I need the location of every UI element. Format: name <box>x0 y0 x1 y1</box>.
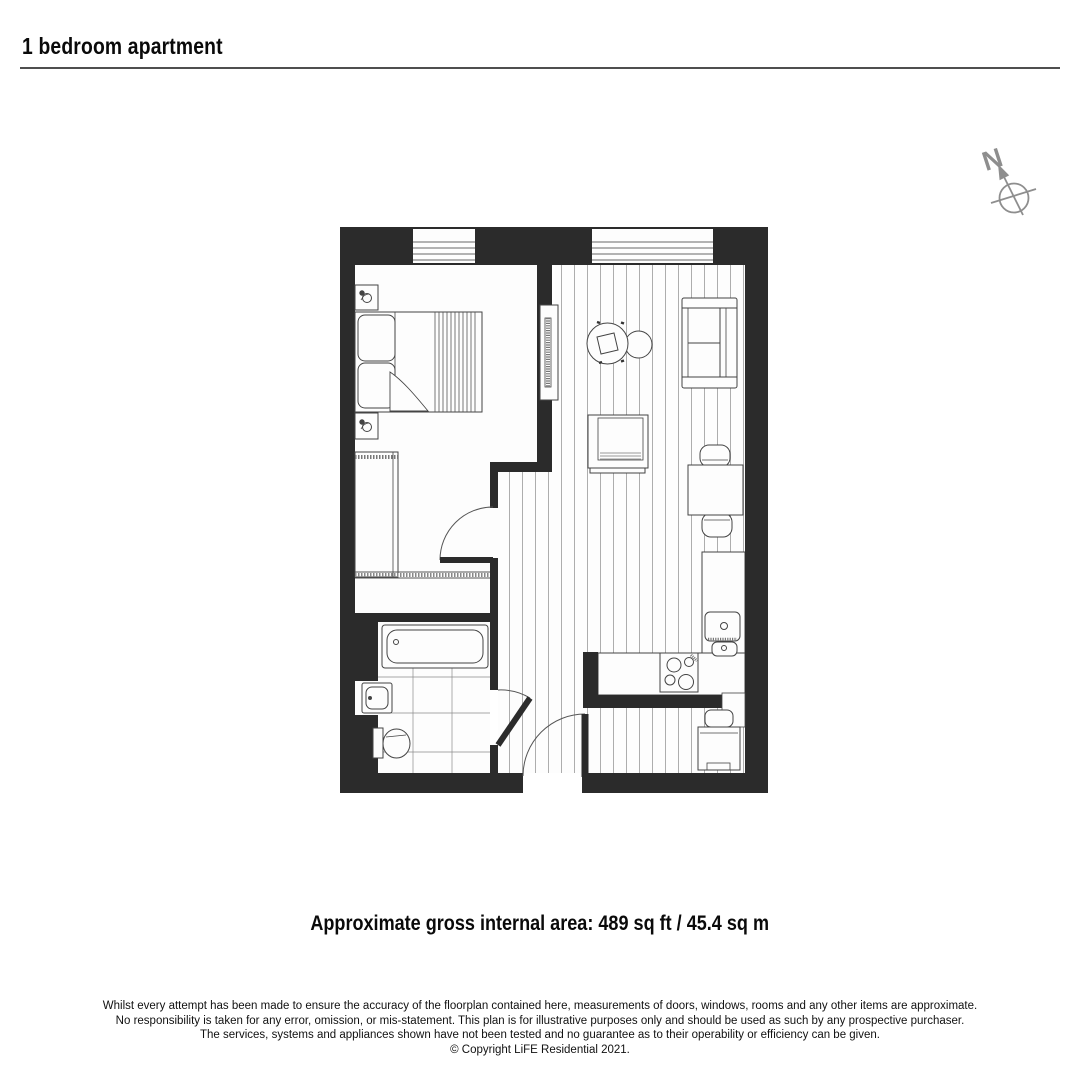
armchair <box>588 415 648 473</box>
disclaimer-line: No responsibility is taken for any error… <box>0 1014 1080 1029</box>
window <box>592 229 713 263</box>
nightstand <box>355 285 378 310</box>
window <box>413 229 475 263</box>
title-divider <box>20 67 1060 69</box>
area-summary: Approximate gross internal area: 489 sq … <box>0 912 1080 936</box>
page-title: 1 bedroom apartment <box>22 33 223 60</box>
hob <box>660 653 698 692</box>
bathtub <box>382 625 488 668</box>
bed <box>355 312 482 412</box>
disclaimer-line: The services, systems and appliances sho… <box>0 1028 1080 1043</box>
toilet <box>373 728 410 758</box>
pillow <box>358 315 395 361</box>
sofa <box>682 298 737 388</box>
area-label: Approximate gross internal area: 489 sq … <box>311 912 770 936</box>
washbasin <box>362 683 392 713</box>
dining-chair <box>625 331 652 358</box>
compass-north-label: N <box>978 142 1006 177</box>
round-table <box>587 322 628 364</box>
compass-icon: N <box>975 135 1045 245</box>
copyright-line: © Copyright LiFE Residential 2021. <box>0 1043 1080 1058</box>
floorplan <box>340 227 768 793</box>
disclaimer: Whilst every attempt has been made to en… <box>0 999 1080 1057</box>
disclaimer-line: Whilst every attempt has been made to en… <box>0 999 1080 1014</box>
pillow <box>358 363 395 408</box>
radiator <box>540 305 558 400</box>
dining-chair <box>700 445 730 467</box>
dining-chair <box>702 513 732 537</box>
wardrobe <box>355 452 398 577</box>
dining-table <box>688 465 743 515</box>
nightstand <box>355 413 378 439</box>
